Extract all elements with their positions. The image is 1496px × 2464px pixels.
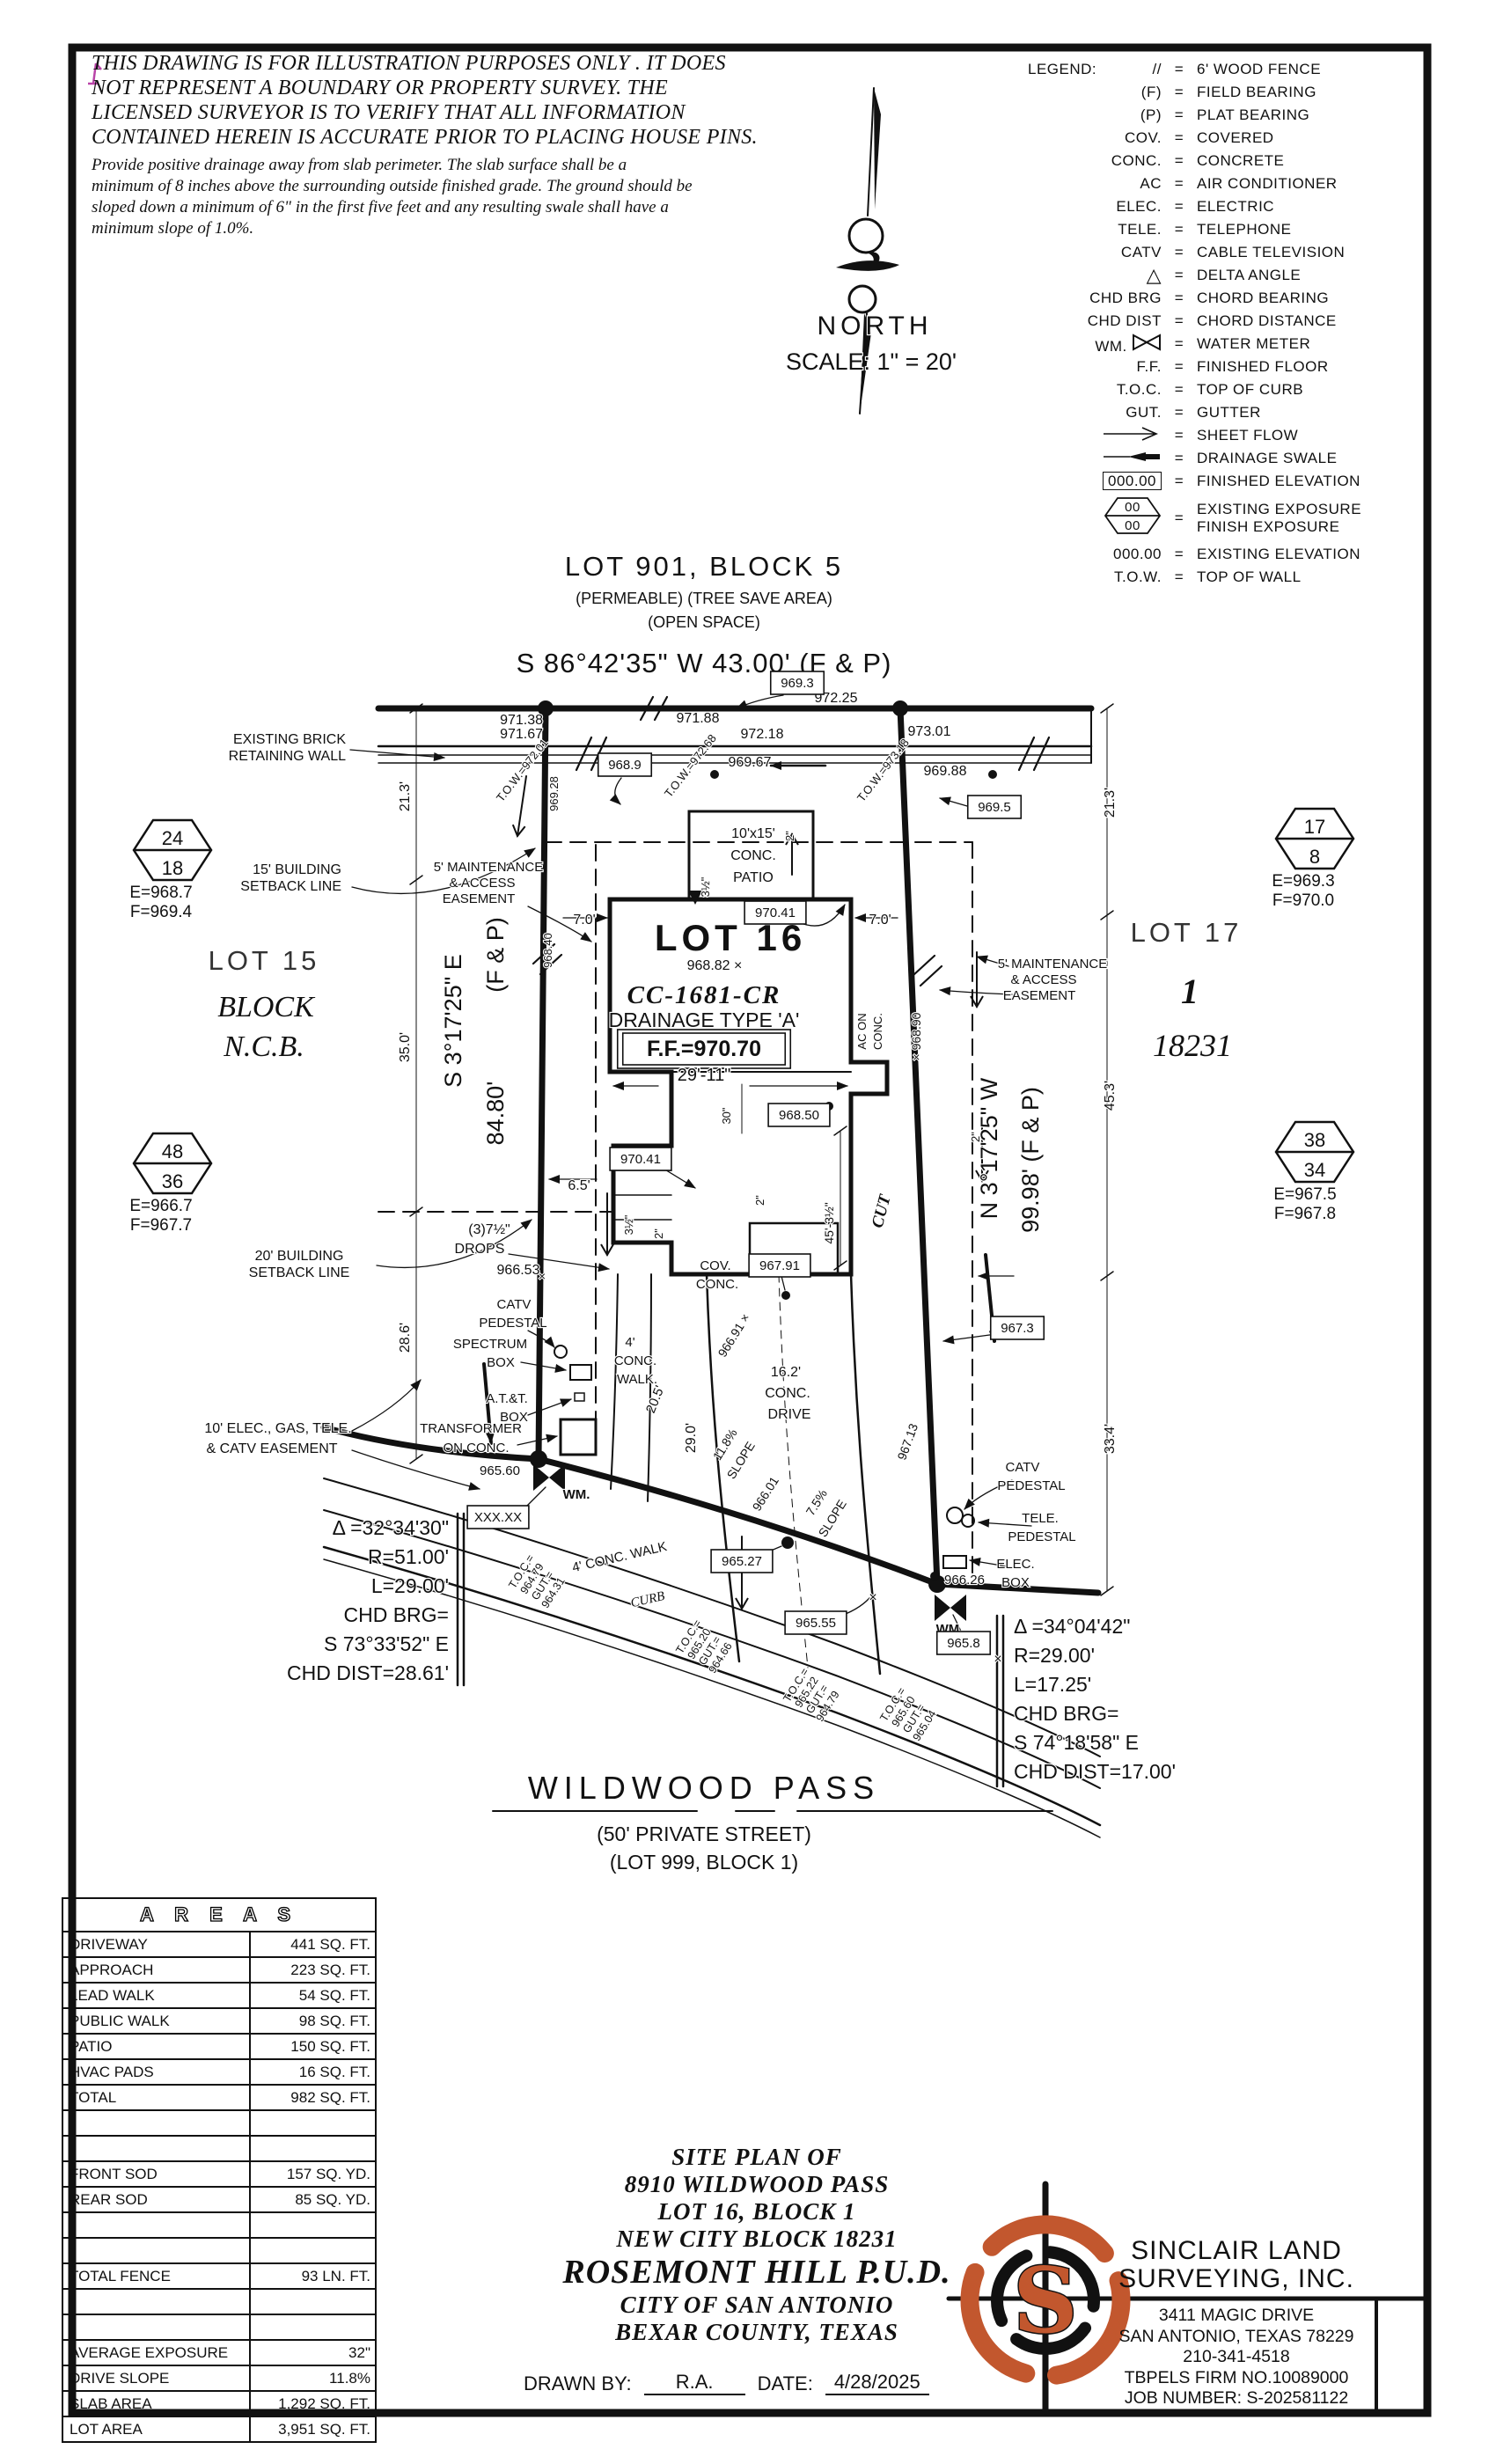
plan-label: BOX bbox=[487, 1355, 515, 1370]
areas-row-label bbox=[63, 2213, 249, 2237]
areas-row-label: SLAB AREA bbox=[63, 2392, 249, 2416]
areas-row-value: 3,951 SQ. FT. bbox=[249, 2417, 375, 2441]
catv-pedestal-right bbox=[947, 1507, 963, 1523]
areas-row: LEAD WALK 54 SQ. FT. bbox=[63, 1982, 375, 2007]
site-plan-sheet: { "colors": { "ink": "#111111", "accent_… bbox=[0, 0, 1496, 2464]
plan-label: SPECTRUM bbox=[453, 1337, 527, 1352]
legend-equals: = bbox=[1162, 427, 1197, 444]
plan-label: 966.01 bbox=[750, 1474, 781, 1514]
areas-row-value bbox=[249, 2315, 375, 2339]
legend-label: TOP OF WALL bbox=[1197, 568, 1426, 586]
legend-equals: = bbox=[1162, 568, 1197, 586]
legend-item: = SHEET FLOW bbox=[1028, 424, 1426, 447]
legend-label: 6' WOOD FENCE bbox=[1197, 61, 1426, 78]
plan-label: S 73°33'52" E bbox=[324, 1632, 449, 1655]
legend-equals: = bbox=[1162, 381, 1197, 399]
legend-item: CHD BRG = CHORD BEARING bbox=[1028, 287, 1426, 310]
plan-label: CUT bbox=[869, 1192, 895, 1229]
plan-label: 16.2' bbox=[771, 1365, 801, 1380]
plan-label: 5' MAINTENANCE bbox=[998, 957, 1108, 972]
company-name: SINCLAIR LAND SURVEYING, INC. bbox=[1104, 2237, 1368, 2293]
plan-label: LOT 17 bbox=[1131, 917, 1243, 948]
plan-label: 35.0' bbox=[398, 1032, 413, 1062]
disclaimer-line: THIS DRAWING IS FOR ILLUSTRATION PURPOSE… bbox=[92, 51, 760, 76]
plan-label: TELE. bbox=[1022, 1511, 1059, 1526]
elec-box bbox=[943, 1556, 966, 1568]
areas-row: DRIVE SLOPE 11.8% bbox=[63, 2365, 375, 2390]
areas-row-value: 93 LN. FT. bbox=[249, 2264, 375, 2288]
plan-label: 38 bbox=[1304, 1129, 1325, 1151]
plan-label: × bbox=[869, 1590, 876, 1605]
legend-label: COVERED bbox=[1197, 129, 1426, 147]
plan-label: (LOT 999, BLOCK 1) bbox=[610, 1851, 798, 1874]
legend-equals: = bbox=[1162, 106, 1197, 124]
plan-label: 968.9 bbox=[608, 758, 642, 773]
areas-row-label bbox=[63, 2239, 249, 2262]
legend-label: WATER METER bbox=[1197, 335, 1426, 353]
legend-item: CHD DIST = CHORD DISTANCE bbox=[1028, 310, 1426, 333]
areas-row-label: PATIO bbox=[63, 2035, 249, 2058]
areas-row-label: REAR SOD bbox=[63, 2188, 249, 2211]
plan-label: (OPEN SPACE) bbox=[648, 613, 760, 631]
plan-label: 5' MAINTENANCE bbox=[434, 860, 544, 875]
areas-row-label: LOT AREA bbox=[63, 2417, 249, 2441]
plan-label: CONC. bbox=[730, 848, 776, 863]
sheet-flow-icon bbox=[1104, 427, 1162, 441]
plan-label: ON CONC. bbox=[444, 1441, 510, 1456]
legend-symbol: (P) bbox=[1028, 106, 1162, 124]
areas-row: FRONT SOD 157 SQ. YD. bbox=[63, 2160, 375, 2186]
plan-label: PATIO bbox=[733, 870, 774, 885]
legend-equals: = bbox=[1162, 510, 1197, 527]
legend-label: TOP OF CURB bbox=[1197, 381, 1426, 399]
legend-item: 000.00 = EXISTING ELEVATION bbox=[1028, 543, 1426, 566]
areas-row-value bbox=[249, 2137, 375, 2160]
title-line: CITY OF SAN ANTONIO bbox=[493, 2292, 1021, 2319]
plan-label: 971.67 bbox=[500, 727, 543, 742]
areas-row-value: 1,292 SQ. FT. bbox=[249, 2392, 375, 2416]
areas-row-value: 441 SQ. FT. bbox=[249, 1932, 375, 1956]
drainage-note-paragraph: Provide positive drainage away from slab… bbox=[92, 155, 760, 239]
plan-label: 20.5' bbox=[643, 1383, 668, 1415]
title-line: NEW CITY BLOCK 18231 bbox=[493, 2226, 1021, 2253]
plan-label: N 3°17'25" W bbox=[976, 1077, 1002, 1219]
areas-row-value: 223 SQ. FT. bbox=[249, 1958, 375, 1982]
date-label: DATE: bbox=[758, 2372, 813, 2395]
plan-label: 965.8 bbox=[947, 1636, 980, 1651]
plan-label: CURB bbox=[629, 1589, 666, 1610]
plan-label: 966.91 × bbox=[715, 1311, 752, 1360]
plan-label: Δ =32°34'30" bbox=[333, 1516, 449, 1539]
plan-label: 21.3' bbox=[1103, 788, 1118, 818]
plan-label: 971.38 bbox=[500, 713, 543, 728]
plan-label: EXISTING BRICK bbox=[233, 732, 346, 747]
plan-label: EASEMENT bbox=[1003, 988, 1076, 1003]
water-meter-icon bbox=[935, 1595, 966, 1621]
legend-label: TELEPHONE bbox=[1197, 221, 1426, 238]
plan-label: (3)7½" bbox=[468, 1222, 510, 1237]
title-block: SITE PLAN OF8910 WILDWOOD PASSLOT 16, BL… bbox=[493, 2144, 1021, 2346]
plan-label: 968.40 bbox=[541, 933, 554, 968]
plan-label: 24 bbox=[162, 827, 183, 849]
legend-equals: = bbox=[1162, 404, 1197, 422]
legend-label: EXISTING ELEVATION bbox=[1197, 546, 1426, 563]
plan-label: E=969.3 bbox=[1272, 872, 1334, 891]
disclaimer-line: minimum slope of 1.0%. bbox=[92, 218, 760, 239]
areas-row-value: 16 SQ. FT. bbox=[249, 2060, 375, 2084]
plan-label: CONC. bbox=[871, 1013, 884, 1050]
plan-label: 1 bbox=[1181, 972, 1199, 1011]
disclaimer-line: Provide positive drainage away from slab… bbox=[92, 155, 760, 176]
plan-label: 36 bbox=[162, 1170, 183, 1192]
legend-symbol: (F) bbox=[1028, 84, 1162, 101]
plan-label: PEDESTAL bbox=[1008, 1529, 1075, 1544]
legend: LEGEND: // = 6' WOOD FENCE(F) = FIELD BE… bbox=[1028, 58, 1426, 589]
areas-row: TOTAL 982 SQ. FT. bbox=[63, 2084, 375, 2109]
legend-label: CHORD DISTANCE bbox=[1197, 312, 1426, 330]
plan-label: 45'-3½" bbox=[822, 1202, 836, 1243]
legend-item: GUT. = GUTTER bbox=[1028, 401, 1426, 424]
plan-label: 966.53 bbox=[497, 1263, 540, 1278]
title-line: BEXAR COUNTY, TEXAS bbox=[493, 2319, 1021, 2346]
legend-symbol: 000.00 bbox=[1028, 473, 1162, 490]
plan-label: 2" bbox=[753, 1195, 766, 1206]
plan-label: WM. bbox=[563, 1487, 590, 1502]
plan-label: 29'-11" bbox=[678, 1066, 731, 1085]
areas-row-label: DRIVE SLOPE bbox=[63, 2366, 249, 2390]
legend-symbol: 0000 bbox=[1028, 493, 1162, 543]
plan-label: XXX.XX bbox=[474, 1510, 522, 1525]
plan-label: Δ =34°04'42" bbox=[1014, 1615, 1130, 1638]
plan-label: 966.26 bbox=[944, 1573, 985, 1588]
disclaimer-paragraph-1: THIS DRAWING IS FOR ILLUSTRATION PURPOSE… bbox=[92, 51, 760, 150]
company-detail-line: 3411 MAGIC DRIVE bbox=[1093, 2306, 1380, 2327]
legend-label: PLAT BEARING bbox=[1197, 106, 1426, 124]
plan-label: A.T.&T. bbox=[486, 1391, 528, 1406]
plan-label: × bbox=[994, 1652, 1001, 1667]
areas-row-value bbox=[249, 2290, 375, 2314]
plan-label: 968.82 × bbox=[687, 958, 743, 973]
plan-label: 969.5 bbox=[978, 800, 1011, 815]
plan-label: 969.88 bbox=[924, 764, 967, 779]
plan-label: CATV bbox=[497, 1297, 532, 1312]
plan-label: 18 bbox=[162, 857, 183, 879]
plan-label: SCALE: 1" = 20' bbox=[786, 348, 957, 375]
areas-row-label bbox=[63, 2290, 249, 2314]
plan-label: AC ON bbox=[855, 1013, 869, 1049]
plan-label: E=966.7 bbox=[129, 1197, 192, 1215]
areas-row: LOT AREA 3,951 SQ. FT. bbox=[63, 2416, 375, 2441]
plan-label: 3½" bbox=[699, 876, 712, 897]
areas-row-label: FRONT SOD bbox=[63, 2162, 249, 2186]
att-box bbox=[575, 1393, 584, 1401]
water-meter-icon bbox=[533, 1464, 565, 1491]
disclaimer-line: minimum of 8 inches above the surroundin… bbox=[92, 176, 760, 197]
plan-label: S 74°18'58" E bbox=[1014, 1731, 1139, 1754]
plan-label: CC-1681-CR bbox=[627, 981, 781, 1009]
legend-label: FINISHED FLOOR bbox=[1197, 358, 1426, 376]
legend-item: COV. = COVERED bbox=[1028, 127, 1426, 150]
legend-rows: // = 6' WOOD FENCE(F) = FIELD BEARING(P)… bbox=[1028, 58, 1426, 589]
plan-label: 965.55 bbox=[796, 1616, 836, 1631]
spectrum-box bbox=[570, 1365, 591, 1380]
plan-label: 965.27 bbox=[722, 1554, 762, 1569]
areas-row bbox=[63, 2135, 375, 2160]
plan-label: LOT 15 bbox=[209, 945, 320, 976]
legend-label: ELECTRIC bbox=[1197, 198, 1426, 216]
exposure-hex-icon: 0000 bbox=[1104, 493, 1162, 539]
legend-equals: = bbox=[1162, 267, 1197, 284]
plan-label: 4' CONC. WALK bbox=[571, 1539, 669, 1575]
svg-text:00: 00 bbox=[1125, 500, 1140, 515]
legend-equals: = bbox=[1162, 84, 1197, 101]
plan-label: 30" bbox=[720, 1107, 733, 1124]
plan-label: 965.60 bbox=[480, 1463, 520, 1478]
legend-equals: = bbox=[1162, 244, 1197, 261]
drainage-swale-icon bbox=[1104, 451, 1162, 463]
legend-equals: = bbox=[1162, 473, 1197, 490]
areas-row-label bbox=[63, 2111, 249, 2135]
plan-label: 4' bbox=[625, 1335, 634, 1350]
areas-row: TOTAL FENCE 93 LN. FT. bbox=[63, 2262, 375, 2288]
drawn-by-row: DRAWN BY: R.A. DATE: 4/28/2025 bbox=[524, 2371, 1016, 2395]
legend-symbol: T.O.W. bbox=[1028, 568, 1162, 586]
legend-equals: = bbox=[1162, 450, 1197, 467]
company-detail-line: JOB NUMBER: S-202581122 bbox=[1093, 2388, 1380, 2409]
areas-row-value: 11.8% bbox=[249, 2366, 375, 2390]
plan-label: EASEMENT bbox=[443, 891, 516, 906]
plan-label: 7.5% bbox=[803, 1487, 830, 1519]
legend-equals: = bbox=[1162, 290, 1197, 307]
areas-row-value: 157 SQ. YD. bbox=[249, 2162, 375, 2186]
plan-label: 45.3' bbox=[1103, 1081, 1118, 1111]
plan-label: F=969.4 bbox=[130, 903, 193, 921]
areas-row-value: 85 SQ. YD. bbox=[249, 2188, 375, 2211]
areas-row-label: LEAD WALK bbox=[63, 1984, 249, 2007]
plan-label: 33.4' bbox=[1103, 1424, 1118, 1454]
legend-symbol: 000.00 bbox=[1028, 546, 1162, 563]
legend-symbol: AC bbox=[1028, 175, 1162, 193]
plan-label: 967.91 bbox=[759, 1258, 800, 1273]
legend-label: CONCRETE bbox=[1197, 152, 1426, 170]
legend-item: WM. = WATER METER bbox=[1028, 333, 1426, 356]
legend-item: F.F. = FINISHED FLOOR bbox=[1028, 356, 1426, 378]
plan-label: 48 bbox=[162, 1140, 183, 1162]
plan-label: CONC. bbox=[765, 1386, 810, 1401]
legend-item: ELEC. = ELECTRIC bbox=[1028, 195, 1426, 218]
plan-label: 20' BUILDING bbox=[255, 1249, 344, 1264]
areas-row: SLAB AREA 1,292 SQ. FT. bbox=[63, 2390, 375, 2416]
legend-equals: = bbox=[1162, 198, 1197, 216]
plan-label: WALK. bbox=[617, 1372, 657, 1387]
transformer-box bbox=[561, 1419, 596, 1455]
company-name-line2: SURVEYING, INC. bbox=[1104, 2265, 1368, 2293]
legend-item: 000.00 = FINISHED ELEVATION bbox=[1028, 470, 1426, 493]
water-meter-icon bbox=[1132, 334, 1162, 351]
areas-row bbox=[63, 2288, 375, 2314]
legend-symbol: CATV bbox=[1028, 244, 1162, 261]
plan-label: R=29.00' bbox=[1014, 1644, 1095, 1667]
plan-label: LOT 901, BLOCK 5 bbox=[565, 551, 843, 582]
areas-row-label: TOTAL FENCE bbox=[63, 2264, 249, 2288]
plan-label: CHD BRG= bbox=[1014, 1702, 1119, 1725]
plan-label: 8 bbox=[1309, 846, 1320, 868]
areas-row-value: 982 SQ. FT. bbox=[249, 2086, 375, 2109]
plan-label: (50' PRIVATE STREET) bbox=[597, 1822, 811, 1845]
plan-label: 969.67 bbox=[729, 755, 772, 770]
disclaimer-line: NOT REPRESENT A BOUNDARY OR PROPERTY SUR… bbox=[92, 76, 760, 100]
legend-symbol bbox=[1028, 450, 1162, 467]
plan-label: 28.6' bbox=[398, 1323, 413, 1353]
plan-label: BOX bbox=[1001, 1575, 1030, 1590]
legend-equals: = bbox=[1162, 152, 1197, 170]
legend-symbol: CONC. bbox=[1028, 152, 1162, 170]
title-line: SITE PLAN OF bbox=[493, 2144, 1021, 2171]
legend-equals: = bbox=[1162, 335, 1197, 353]
legend-item: = DRAINAGE SWALE bbox=[1028, 447, 1426, 470]
plan-label: 970.41 bbox=[620, 1152, 661, 1167]
plan-label: 967.3 bbox=[1001, 1321, 1034, 1336]
plan-label: SETBACK LINE bbox=[240, 879, 341, 894]
plan-label: 969.3 bbox=[781, 676, 814, 691]
plan-label: & ACCESS bbox=[449, 876, 515, 891]
legend-label: FINISHED ELEVATION bbox=[1197, 473, 1426, 490]
plan-label: 2" bbox=[969, 1132, 982, 1142]
plan-label: F=970.0 bbox=[1272, 891, 1334, 910]
areas-row-label bbox=[63, 2315, 249, 2339]
legend-equals: = bbox=[1162, 129, 1197, 147]
plan-label: L=29.00' bbox=[371, 1574, 449, 1597]
plan-label: CONC. bbox=[696, 1277, 738, 1292]
areas-row: PUBLIC WALK 98 SQ. FT. bbox=[63, 2007, 375, 2033]
plan-label: 84.80' bbox=[482, 1082, 509, 1146]
legend-equals: = bbox=[1162, 61, 1197, 78]
plan-label: L=17.25' bbox=[1014, 1673, 1091, 1696]
plan-label: 2" bbox=[783, 831, 796, 841]
areas-table: A R E A S DRIVEWAY 441 SQ. FT.APPROACH 2… bbox=[62, 1897, 377, 2443]
legend-equals: = bbox=[1162, 546, 1197, 563]
areas-row: DRIVEWAY 441 SQ. FT. bbox=[63, 1931, 375, 1956]
plan-label: F=967.7 bbox=[130, 1216, 192, 1235]
date-value: 4/28/2025 bbox=[825, 2371, 929, 2395]
legend-item: T.O.C. = TOP OF CURB bbox=[1028, 378, 1426, 401]
areas-row-value: 54 SQ. FT. bbox=[249, 1984, 375, 2007]
plan-label: PEDESTAL bbox=[997, 1478, 1065, 1493]
catv-pedestal-left bbox=[554, 1346, 567, 1358]
areas-table-rows: DRIVEWAY 441 SQ. FT.APPROACH 223 SQ. FT.… bbox=[63, 1931, 375, 2441]
legend-item: T.O.W. = TOP OF WALL bbox=[1028, 566, 1426, 589]
plan-label: & CATV EASEMENT bbox=[206, 1441, 337, 1456]
plan-label: × 968.90 bbox=[909, 1012, 923, 1060]
plan-label: RETAINING WALL bbox=[229, 749, 346, 764]
plan-label: 968.50 bbox=[779, 1108, 819, 1123]
plan-label: 6.5' bbox=[568, 1178, 590, 1193]
legend-label: FIELD BEARING bbox=[1197, 84, 1426, 101]
plan-label: 973.01 bbox=[908, 724, 951, 739]
plan-label: S 3°17'25" E bbox=[440, 954, 466, 1088]
plan-label: CONC. bbox=[614, 1353, 656, 1368]
areas-table-title: A R E A S bbox=[63, 1899, 375, 1931]
plan-label: 971.88 bbox=[677, 711, 720, 726]
plan-label: F.F.=970.70 bbox=[647, 1037, 761, 1061]
plan-label: 7.0' bbox=[869, 913, 891, 928]
legend-equals: = bbox=[1162, 312, 1197, 330]
plan-label: (PERMEABLE) (TREE SAVE AREA) bbox=[576, 590, 832, 607]
plan-label: PEDESTAL bbox=[479, 1316, 546, 1331]
plan-label: NORTH bbox=[817, 312, 932, 341]
areas-row: APPROACH 223 SQ. FT. bbox=[63, 1956, 375, 1982]
areas-row-value bbox=[249, 2111, 375, 2135]
areas-row-label: AVERAGE EXPOSURE bbox=[63, 2341, 249, 2365]
plan-label: TRANSFORMER bbox=[420, 1421, 522, 1436]
plan-label: SETBACK LINE bbox=[249, 1265, 350, 1280]
areas-row-value: 150 SQ. FT. bbox=[249, 2035, 375, 2058]
svg-text:00: 00 bbox=[1125, 518, 1140, 533]
plan-label: 18231 bbox=[1153, 1028, 1232, 1063]
plan-label: N.C.B. bbox=[223, 1030, 304, 1063]
areas-row-value bbox=[249, 2239, 375, 2262]
plan-label: CHD DIST=28.61' bbox=[287, 1661, 449, 1684]
legend-symbol: CHD DIST bbox=[1028, 312, 1162, 330]
areas-row: AVERAGE EXPOSURE 32" bbox=[63, 2339, 375, 2365]
legend-item: // = 6' WOOD FENCE bbox=[1028, 58, 1426, 81]
legend-equals: = bbox=[1162, 358, 1197, 376]
areas-row: HVAC PADS 16 SQ. FT. bbox=[63, 2058, 375, 2084]
legend-label: DRAINAGE SWALE bbox=[1197, 450, 1426, 467]
legend-symbol: △ bbox=[1028, 264, 1162, 287]
logo-letter: S bbox=[1013, 2248, 1078, 2354]
plan-label: T.O.W.=972.68 bbox=[662, 732, 719, 800]
plan-label: F=967.8 bbox=[1274, 1205, 1336, 1223]
plan-label: & ACCESS bbox=[1010, 972, 1076, 987]
plan-label: 17 bbox=[1304, 816, 1325, 838]
legend-item: △ = DELTA ANGLE bbox=[1028, 264, 1426, 287]
areas-row-label: DRIVEWAY bbox=[63, 1932, 249, 1956]
disclaimer-note: THIS DRAWING IS FOR ILLUSTRATION PURPOSE… bbox=[92, 51, 760, 239]
areas-row-label: HVAC PADS bbox=[63, 2060, 249, 2084]
title-line: ROSEMONT HILL P.U.D. bbox=[493, 2253, 1021, 2292]
areas-row bbox=[63, 2314, 375, 2339]
plan-label: 970.41 bbox=[755, 906, 796, 920]
plan-label: S 86°42'35" W 43.00' (F & P) bbox=[517, 648, 892, 678]
plan-label: DRAINAGE TYPE 'A' bbox=[609, 1008, 800, 1031]
legend-label: DELTA ANGLE bbox=[1197, 267, 1426, 284]
plan-label: 7.0' bbox=[573, 913, 595, 928]
areas-row-value: 98 SQ. FT. bbox=[249, 2009, 375, 2033]
company-detail-line: TBPELS FIRM NO.10089000 bbox=[1093, 2368, 1380, 2389]
legend-label: CABLE TELEVISION bbox=[1197, 244, 1426, 261]
legend-label: SHEET FLOW bbox=[1197, 427, 1426, 444]
plan-label: CHD BRG= bbox=[344, 1603, 450, 1626]
legend-label: EXISTING EXPOSUREFINISH EXPOSURE bbox=[1197, 501, 1426, 536]
plan-label: 3½" bbox=[622, 1214, 635, 1235]
plan-label: R=51.00' bbox=[368, 1545, 449, 1568]
plan-label: COV. bbox=[700, 1258, 730, 1273]
legend-symbol: GUT. bbox=[1028, 404, 1162, 422]
areas-row-label: TOTAL bbox=[63, 2086, 249, 2109]
plan-label: 34 bbox=[1304, 1159, 1325, 1181]
legend-symbol: ELEC. bbox=[1028, 198, 1162, 216]
drawn-by-value: R.A. bbox=[644, 2371, 745, 2395]
areas-row-value: 32" bbox=[249, 2341, 375, 2365]
plan-label: WILDWOOD PASS bbox=[528, 1770, 880, 1806]
legend-symbol: CHD BRG bbox=[1028, 290, 1162, 307]
legend-item: CATV = CABLE TELEVISION bbox=[1028, 241, 1426, 264]
disclaimer-line: sloped down a minimum of 6" in the first… bbox=[92, 197, 760, 218]
title-line: LOT 16, BLOCK 1 bbox=[493, 2198, 1021, 2226]
plan-label: 15' BUILDING bbox=[253, 862, 341, 877]
plan-label: 2" bbox=[652, 1228, 665, 1239]
